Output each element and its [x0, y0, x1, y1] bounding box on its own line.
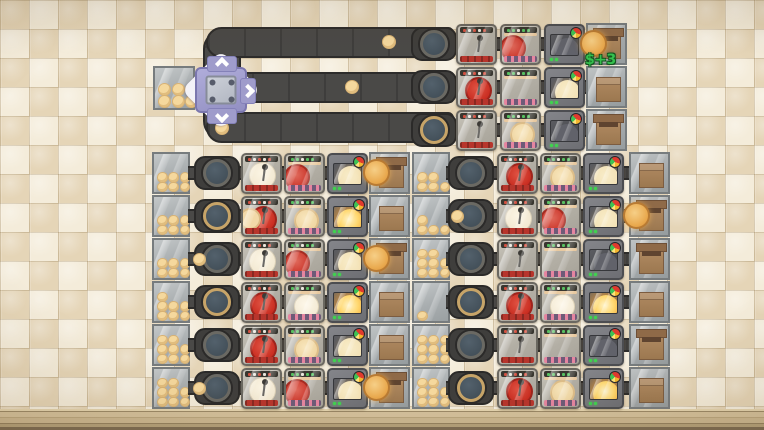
oven-machine[interactable]	[583, 325, 624, 366]
output-box-cell[interactable]	[369, 324, 410, 366]
griddle-control-bar	[544, 271, 577, 277]
output-box-cell[interactable]	[586, 66, 627, 108]
led-light	[594, 187, 597, 190]
indicator-light	[522, 115, 525, 118]
indicator-light	[522, 29, 525, 32]
indicator-light	[512, 115, 515, 118]
indicator-light	[248, 201, 251, 204]
indicator-light	[263, 330, 266, 333]
indicator-light	[291, 158, 294, 161]
dough-ball	[180, 354, 191, 365]
indicator-light	[296, 373, 299, 376]
indicator-light	[557, 158, 560, 161]
indicator-light	[519, 158, 522, 161]
output-box-cell[interactable]	[629, 367, 670, 409]
burner-status-bar	[245, 199, 278, 205]
indicator-light	[463, 29, 466, 32]
indicator-light	[306, 201, 309, 204]
belt-node[interactable]	[194, 328, 240, 362]
dough-ball	[417, 344, 428, 355]
indicator-light	[306, 287, 309, 290]
belt-node-dial	[420, 73, 448, 101]
indicator-light	[509, 201, 512, 204]
dough-supply-cell[interactable]	[152, 367, 190, 409]
dough-supply-cell[interactable]	[412, 152, 450, 194]
oven-machine[interactable]	[583, 368, 624, 409]
led-light	[333, 359, 336, 362]
griddle-machine[interactable]	[540, 325, 581, 366]
dough-ball	[417, 182, 428, 193]
indicator-light	[514, 201, 517, 204]
oven-machine[interactable]	[583, 153, 624, 194]
output-box-cell[interactable]	[586, 109, 627, 151]
indicator-light	[296, 287, 299, 290]
dough-ball	[417, 335, 428, 346]
belt-node[interactable]	[448, 328, 494, 362]
griddle-rim	[544, 334, 577, 337]
cardboard-box[interactable]	[596, 120, 621, 145]
indicator-light	[296, 158, 299, 161]
dough-ball	[417, 172, 428, 183]
burner-machine[interactable]	[497, 153, 538, 194]
dough-ball	[168, 311, 179, 322]
griddle-machine[interactable]	[284, 368, 325, 409]
dough-ball	[428, 344, 439, 355]
timer-dial-icon	[609, 328, 621, 340]
griddle-machine[interactable]	[284, 282, 325, 323]
indicator-light	[463, 72, 466, 75]
dough-supply-cell[interactable]	[412, 367, 450, 409]
timer-dial-icon	[609, 242, 621, 254]
dough-ball	[428, 258, 439, 269]
output-box-cell[interactable]	[369, 281, 410, 323]
burner-status-bar	[460, 70, 493, 76]
indicator-light	[311, 244, 314, 247]
belt-node[interactable]	[194, 156, 240, 190]
splitter-port-down	[207, 108, 237, 124]
indicator-light	[248, 330, 251, 333]
dough-supply-cell[interactable]	[412, 238, 450, 280]
output-box-cell[interactable]	[369, 195, 410, 237]
output-box-cell[interactable]	[629, 195, 670, 237]
indicator-light	[514, 373, 517, 376]
output-box-cell[interactable]	[629, 324, 670, 366]
indicator-light	[268, 373, 271, 376]
dough-ball	[168, 344, 179, 355]
dough-ball	[180, 182, 191, 193]
indicator-light	[527, 29, 530, 32]
indicator-light	[468, 72, 471, 75]
dough-ball	[428, 268, 439, 279]
indicator-light	[527, 72, 530, 75]
burner-heat-bar	[245, 271, 278, 277]
dough-ball	[168, 397, 179, 408]
indicator-light	[473, 29, 476, 32]
oven-machine[interactable]	[583, 282, 624, 323]
pancake-glowing	[337, 295, 362, 314]
oven-machine[interactable]	[544, 110, 585, 151]
splitter-arrow-down-icon	[215, 109, 229, 123]
belt-node[interactable]	[411, 27, 457, 61]
oven-machine[interactable]	[583, 196, 624, 237]
dough-ball	[157, 182, 168, 193]
timer-dial-icon	[570, 70, 582, 82]
indicator-light	[258, 287, 261, 290]
igniter-icon	[477, 125, 481, 138]
indicator-light	[306, 330, 309, 333]
griddle-machine[interactable]	[540, 196, 581, 237]
belt-node[interactable]	[448, 242, 494, 276]
dough-supply-cell[interactable]	[152, 152, 190, 194]
oven-machine[interactable]	[327, 153, 368, 194]
dough-ball	[180, 397, 191, 408]
indicator-light	[258, 158, 261, 161]
dough-ball	[168, 172, 179, 183]
griddle-machine[interactable]	[540, 368, 581, 409]
belt-node[interactable]	[194, 199, 240, 233]
indicator-light	[509, 244, 512, 247]
burner-machine[interactable]	[456, 67, 497, 108]
oven-machine[interactable]	[327, 282, 368, 323]
indicator-light	[547, 201, 550, 204]
output-box-cell[interactable]	[629, 281, 670, 323]
oven-leds	[550, 58, 558, 61]
dough-ball	[417, 397, 428, 408]
belt-node[interactable]	[194, 285, 240, 319]
dough-ball	[417, 354, 428, 365]
griddle-control-bar	[504, 99, 537, 105]
indicator-light	[517, 115, 520, 118]
cardboard-box[interactable]	[596, 77, 621, 102]
led-light	[594, 402, 597, 405]
indicator-light	[258, 244, 261, 247]
indicator-light	[291, 201, 294, 204]
burner-heat-bar	[501, 314, 534, 320]
indicator-light	[504, 373, 507, 376]
griddle-machine[interactable]	[284, 325, 325, 366]
indicator-light	[296, 244, 299, 247]
griddle-machine[interactable]	[540, 239, 581, 280]
griddle-machine[interactable]	[540, 282, 581, 323]
dough-supply-cell[interactable]	[152, 195, 190, 237]
indicator-light	[301, 373, 304, 376]
burner-status-bar	[501, 285, 534, 291]
led-light	[338, 316, 341, 319]
output-box-cell[interactable]	[369, 238, 410, 280]
burner-machine[interactable]	[497, 282, 538, 323]
output-box-cell[interactable]	[369, 152, 410, 194]
indicator-light	[509, 373, 512, 376]
dough-ball	[157, 311, 168, 322]
dough-ball	[172, 95, 185, 108]
griddle-control-bar	[288, 228, 321, 234]
dough-ball	[193, 382, 206, 395]
oven-machine[interactable]	[327, 196, 368, 237]
cardboard-box[interactable]	[639, 292, 664, 317]
indicator-light	[522, 72, 525, 75]
indicator-light	[306, 244, 309, 247]
burner-heat-bar	[501, 185, 534, 191]
belt-node[interactable]	[448, 156, 494, 190]
indicator-light	[512, 29, 515, 32]
burner-machine[interactable]	[241, 325, 282, 366]
oven-machine[interactable]	[327, 368, 368, 409]
griddle-machine[interactable]	[500, 110, 541, 151]
indicator-light	[311, 158, 314, 161]
led-light	[594, 273, 597, 276]
dough-ball	[428, 182, 439, 193]
oven-machine[interactable]	[544, 24, 585, 65]
belt-node[interactable]	[448, 285, 494, 319]
indicator-light	[268, 201, 271, 204]
burner-status-bar	[245, 285, 278, 291]
led-light	[555, 101, 558, 104]
dough-ball	[157, 172, 168, 183]
indicator-light	[557, 373, 560, 376]
burner-machine[interactable]	[241, 153, 282, 194]
belt-node-dial	[203, 374, 231, 402]
oven-leds	[589, 273, 597, 276]
indicator-light	[291, 244, 294, 247]
indicator-light	[547, 158, 550, 161]
dough-ball	[157, 292, 168, 303]
dough-ball	[168, 258, 179, 269]
dough-supply-cell[interactable]	[152, 324, 190, 366]
burner-status-bar	[245, 328, 278, 334]
indicator-light	[291, 330, 294, 333]
indicator-light	[311, 330, 314, 333]
dough-ball	[157, 301, 168, 312]
dough-supply-cell[interactable]	[152, 238, 190, 280]
indicator-light	[514, 287, 517, 290]
indicator-light	[504, 158, 507, 161]
dough-ball	[157, 387, 168, 398]
led-light	[338, 230, 341, 233]
output-box-cell[interactable]	[369, 367, 410, 409]
led-light	[555, 144, 558, 147]
dough-ball	[157, 344, 168, 355]
indicator-light	[311, 373, 314, 376]
dough-supply-cell[interactable]	[412, 281, 450, 323]
cardboard-box[interactable]	[639, 335, 664, 360]
indicator-light	[519, 373, 522, 376]
dough-supply-cell[interactable]	[412, 324, 450, 366]
dough-ball	[428, 354, 439, 365]
led-light	[589, 359, 592, 362]
led-light	[333, 230, 336, 233]
indicator-light	[291, 287, 294, 290]
led-light	[589, 402, 592, 405]
indicator-light	[567, 373, 570, 376]
griddle-machine[interactable]	[540, 153, 581, 194]
indicator-light	[263, 158, 266, 161]
cardboard-box[interactable]	[379, 206, 404, 231]
dough-ball	[451, 210, 464, 223]
belt-node[interactable]	[411, 113, 457, 147]
output-box-cell[interactable]	[629, 152, 670, 194]
dough-ball	[428, 172, 439, 183]
led-light	[333, 316, 336, 319]
cardboard-box[interactable]	[379, 292, 404, 317]
indicator-light	[253, 201, 256, 204]
indicator-light	[253, 158, 256, 161]
dough-ball	[158, 83, 171, 96]
burner-machine[interactable]	[241, 239, 282, 280]
splitter-plate	[206, 76, 237, 105]
belt-node[interactable]	[411, 70, 457, 104]
griddle-control-bar	[288, 400, 321, 406]
burner-machine[interactable]	[241, 282, 282, 323]
belt-node-dial	[420, 116, 448, 144]
indicator-light	[547, 330, 550, 333]
cardboard-box[interactable]	[379, 335, 404, 360]
burner-machine[interactable]	[497, 239, 538, 280]
output-box-cell[interactable]	[629, 238, 670, 280]
burner-status-bar	[501, 156, 534, 162]
indicator-light	[562, 373, 565, 376]
dough-ball	[417, 378, 428, 389]
dough-ball	[180, 311, 191, 322]
belt-node-dial	[203, 288, 231, 316]
bolt-icon	[210, 80, 216, 86]
dough-ball	[157, 335, 168, 346]
griddle-machine[interactable]	[284, 239, 325, 280]
indicator-light	[519, 330, 522, 333]
indicator-light	[301, 330, 304, 333]
burner-heat-bar	[245, 400, 278, 406]
indicator-light	[248, 373, 251, 376]
burner-heat-bar	[460, 99, 493, 105]
belt-node[interactable]	[448, 371, 494, 405]
indicator-light	[557, 330, 560, 333]
oven-machine[interactable]	[583, 239, 624, 280]
pancake-inside	[555, 80, 579, 99]
led-light	[338, 187, 341, 190]
griddle-control-bar	[288, 185, 321, 191]
burner-heat-bar	[501, 271, 534, 277]
griddle-machine[interactable]	[500, 24, 541, 65]
belt-node-dial	[457, 374, 485, 402]
indicator-light	[514, 158, 517, 161]
griddle-machine[interactable]	[284, 196, 325, 237]
dough-ball	[157, 268, 168, 279]
indicator-light	[483, 72, 486, 75]
dough-ball	[428, 225, 439, 236]
pancake	[363, 374, 390, 401]
burner-machine[interactable]	[241, 368, 282, 409]
indicator-light	[547, 244, 550, 247]
dough-ball	[168, 268, 179, 279]
burner-machine[interactable]	[497, 196, 538, 237]
indicator-light	[562, 244, 565, 247]
belt-node-dial	[203, 159, 231, 187]
belt-node-dial	[457, 288, 485, 316]
dough-ball	[157, 378, 168, 389]
indicator-light	[552, 158, 555, 161]
indicator-light	[562, 201, 565, 204]
burner-heat-bar	[245, 357, 278, 363]
indicator-light	[552, 244, 555, 247]
indicator-light	[268, 287, 271, 290]
dough-ball	[157, 258, 168, 269]
indicator-light	[567, 244, 570, 247]
indicator-light	[483, 29, 486, 32]
timer-dial-icon	[570, 113, 582, 125]
cardboard-box[interactable]	[639, 378, 664, 403]
dough-ball	[168, 182, 179, 193]
cardboard-box[interactable]	[639, 249, 664, 274]
burner-machine[interactable]	[497, 325, 538, 366]
led-light	[550, 144, 553, 147]
dough-ball	[417, 311, 428, 322]
burner-machine[interactable]	[456, 24, 497, 65]
burner-machine[interactable]	[497, 368, 538, 409]
indicator-light	[473, 72, 476, 75]
indicator-light	[524, 373, 527, 376]
indicator-light	[478, 72, 481, 75]
burner-machine[interactable]	[241, 196, 282, 237]
indicator-light	[562, 330, 565, 333]
dough-ball	[168, 215, 179, 226]
cardboard-box[interactable]	[639, 163, 664, 188]
splitter-port-right	[240, 78, 256, 104]
belt-node-dial	[457, 159, 485, 187]
empty-tray	[555, 38, 579, 56]
griddle-machine[interactable]	[284, 153, 325, 194]
burner-status-bar	[501, 328, 534, 334]
empty-tray	[555, 124, 579, 142]
led-light	[333, 187, 336, 190]
pancake	[623, 202, 650, 229]
indicator-light	[311, 201, 314, 204]
dough-supply-cell[interactable]	[412, 195, 450, 237]
griddle-machine[interactable]	[500, 67, 541, 108]
pancake	[363, 159, 390, 186]
led-light	[589, 273, 592, 276]
oven-leds	[333, 402, 341, 405]
led-light	[589, 230, 592, 233]
dough-ball	[417, 258, 428, 269]
oven-leds	[589, 230, 597, 233]
wood-floor	[0, 409, 764, 430]
dough-supply-cell[interactable]	[152, 281, 190, 323]
indicator-light	[552, 373, 555, 376]
dough-ball	[428, 397, 439, 408]
dough-ball	[417, 387, 428, 398]
oven-machine[interactable]	[327, 239, 368, 280]
pancake-inside	[338, 381, 362, 400]
burner-machine[interactable]	[456, 110, 497, 151]
indicator-light	[567, 287, 570, 290]
oven-machine[interactable]	[327, 325, 368, 366]
indicator-light	[478, 115, 481, 118]
splitter-machine[interactable]	[192, 61, 250, 119]
dough-ball	[417, 225, 428, 236]
dough-ball	[180, 225, 191, 236]
led-light	[338, 359, 341, 362]
oven-machine[interactable]	[544, 67, 585, 108]
dough-ball	[168, 378, 179, 389]
oven-leds	[333, 230, 341, 233]
indicator-light	[248, 287, 251, 290]
burner-status-bar	[460, 27, 493, 33]
indicator-light	[301, 201, 304, 204]
dough-ball	[180, 268, 191, 279]
dough-ball	[417, 215, 428, 226]
indicator-light	[517, 29, 520, 32]
indicator-light	[514, 330, 517, 333]
oven-leds	[333, 359, 341, 362]
